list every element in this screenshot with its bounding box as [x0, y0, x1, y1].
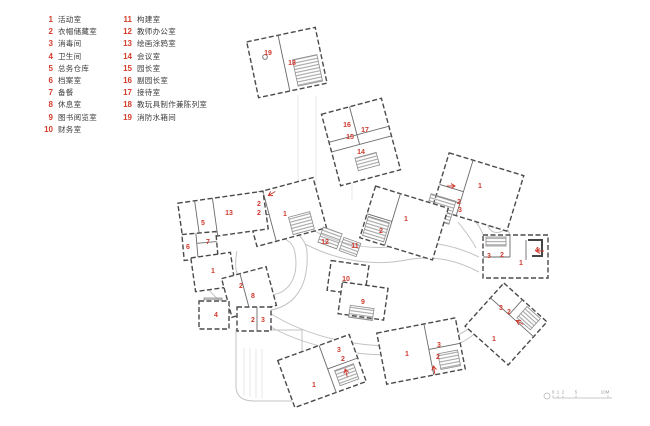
- block-bottom-middle: [377, 318, 465, 384]
- room-number-label: 7: [206, 239, 210, 246]
- room-number-label: 2: [239, 283, 243, 290]
- room-number-label: 1: [404, 216, 408, 223]
- floor-plan-canvas: 1918161715141352216712812112112310942332…: [0, 0, 650, 426]
- room-number-label: 2: [500, 252, 504, 259]
- room-number-label: 1: [492, 336, 496, 343]
- room-number-label: 4: [214, 312, 218, 319]
- room-number-label: 3: [261, 317, 265, 324]
- room-number-label: 2: [257, 201, 261, 208]
- block-19-18: [247, 27, 327, 97]
- room-number-label: 19: [264, 50, 272, 57]
- room-number-label: 16: [343, 122, 351, 129]
- room-number-label: 1: [312, 382, 316, 389]
- room-number-label: 2: [251, 317, 255, 324]
- room-number-label: 12: [321, 239, 329, 246]
- room-number-label: 2: [507, 309, 511, 316]
- room-number-label: 8: [251, 293, 255, 300]
- room-number-label: 2: [457, 199, 461, 206]
- room-number-label: 1: [478, 183, 482, 190]
- room-number-label: 2: [257, 210, 261, 217]
- block-right-d: [483, 235, 548, 278]
- room-number-label: 13: [225, 210, 233, 217]
- room-number-label: 6: [186, 244, 190, 251]
- block-bottom-left: [278, 335, 367, 408]
- room-number-label: 18: [288, 60, 296, 67]
- room-number-label: 17: [361, 127, 369, 134]
- scale-bar-tick-label: 2: [562, 390, 565, 395]
- block-16-17-15-14: [321, 98, 400, 186]
- room-number-label: 3: [337, 347, 341, 354]
- room-number-label: 3: [437, 342, 441, 349]
- scale-bar-tick-label: 10M: [601, 390, 610, 395]
- room-number-label: 3: [499, 305, 503, 312]
- room-number-label: 5: [201, 220, 205, 227]
- room-number-label: 9: [361, 299, 365, 306]
- room-number-label: 11: [351, 243, 359, 250]
- room-number-label: 1: [519, 260, 523, 267]
- room-number-label: 15: [346, 134, 354, 141]
- room-number-label: 10: [342, 276, 350, 283]
- room-number-label: 1: [211, 268, 215, 275]
- room-number-label: 3: [458, 207, 462, 214]
- room-number-label: 3: [487, 253, 491, 260]
- room-number-label: 2: [341, 356, 345, 363]
- room-number-label: 1: [283, 211, 287, 218]
- block-lower-right: [465, 283, 547, 365]
- room-number-label: 14: [357, 149, 365, 156]
- scale-bar: 012510M: [544, 390, 612, 400]
- scale-bar-labels: 012510M: [552, 390, 610, 395]
- scale-bar-tick-label: 1: [557, 390, 560, 395]
- room-number-label: 2: [379, 228, 383, 235]
- room-number-label: 1: [405, 351, 409, 358]
- room-number-label: 2: [436, 354, 440, 361]
- north-indicator-icon: [544, 393, 550, 399]
- scale-bar-tick-label: 5: [575, 390, 578, 395]
- scale-bar-tick-label: 0: [552, 390, 555, 395]
